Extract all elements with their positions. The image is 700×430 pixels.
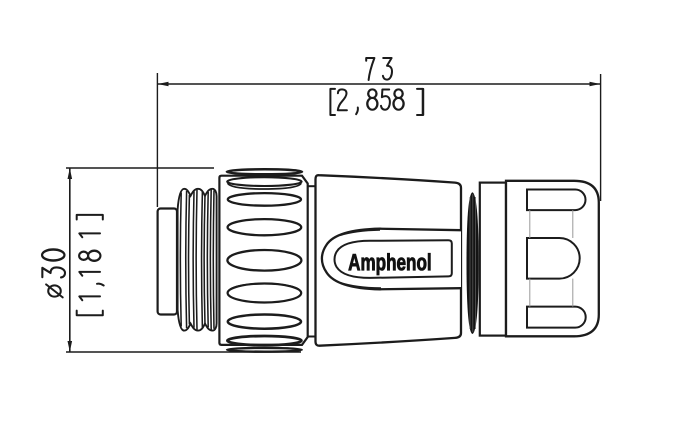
svg-text:Amphenol: Amphenol xyxy=(348,249,432,275)
